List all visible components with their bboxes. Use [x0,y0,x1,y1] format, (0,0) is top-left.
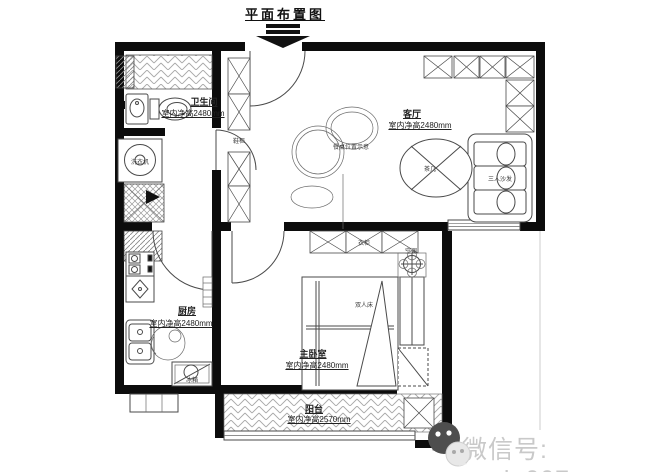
sofa-label: 三人沙发 [488,174,512,183]
stove [126,252,154,276]
bedroom-wardrobe [310,231,346,253]
shoe-cabinet [228,58,250,94]
master-bedroom-height-note: 室内净高2480mm [285,360,348,371]
wall-cabinet [424,56,452,78]
entrance-arrow-icon [256,24,310,48]
shoe-cabinet [228,186,250,222]
living-room-label: 客厅 [403,107,421,120]
dining-table-set [291,107,378,229]
bed-label: 双人床 [355,300,373,309]
outdoor-unit-platform [130,394,178,412]
bathroom-height-note: 室内净高2480mm [161,108,224,119]
bathroom-label: 卫生间 [190,95,217,108]
wall-cabinet [506,56,534,78]
floor-plan-image: 平面布置图 卫生间 室内净高2480mm 客厅 室内净高2480mm 厨房 室内… [0,0,650,472]
wardrobe-label: 衣柜 [358,238,370,247]
living-room-height-note: 室内净高2480mm [388,120,451,131]
dining-table-note-label: 餐桌位置示意 [333,142,369,151]
shoe-cabinet [228,152,250,186]
watermark-text: 微信号: gzvip007 [462,430,650,472]
washing-machine-label: 洗衣机 [131,157,149,166]
tea-table-label: 茶几 [424,164,436,173]
bedside-table [400,277,424,345]
wechat-icon [424,418,474,472]
corner-cabinet [506,80,534,106]
bed [302,277,398,390]
wall-cabinet [480,56,505,78]
balcony-height-note: 室内净高2570mm [287,414,350,425]
washbasin [126,94,148,124]
plan-title: 平面布置图 [245,4,325,23]
corner-cabinet [506,106,534,132]
kitchen-label: 厨房 [178,304,196,317]
entry-door [250,51,305,106]
fridge-label: 冰箱 [186,375,198,384]
kitchen-height-note: 室内净高2480mm [149,318,212,329]
shoe-cabinet-label: 鞋柜 [233,136,245,145]
gas-unit [126,276,154,302]
bedroom-door [232,231,284,283]
floor-plan-drawing [0,0,650,472]
master-bedroom-label: 主卧室 [299,347,326,360]
shoe-cabinet [228,94,250,130]
ac-label: 空调 [405,246,417,255]
bathroom-storage-hatch [126,55,212,89]
wall-cabinet [454,56,479,78]
dresser-dashed [398,348,428,386]
flue-block-hatch [116,56,134,88]
wall-stub [115,128,165,136]
radiator [203,277,212,307]
person-figure [151,326,185,360]
